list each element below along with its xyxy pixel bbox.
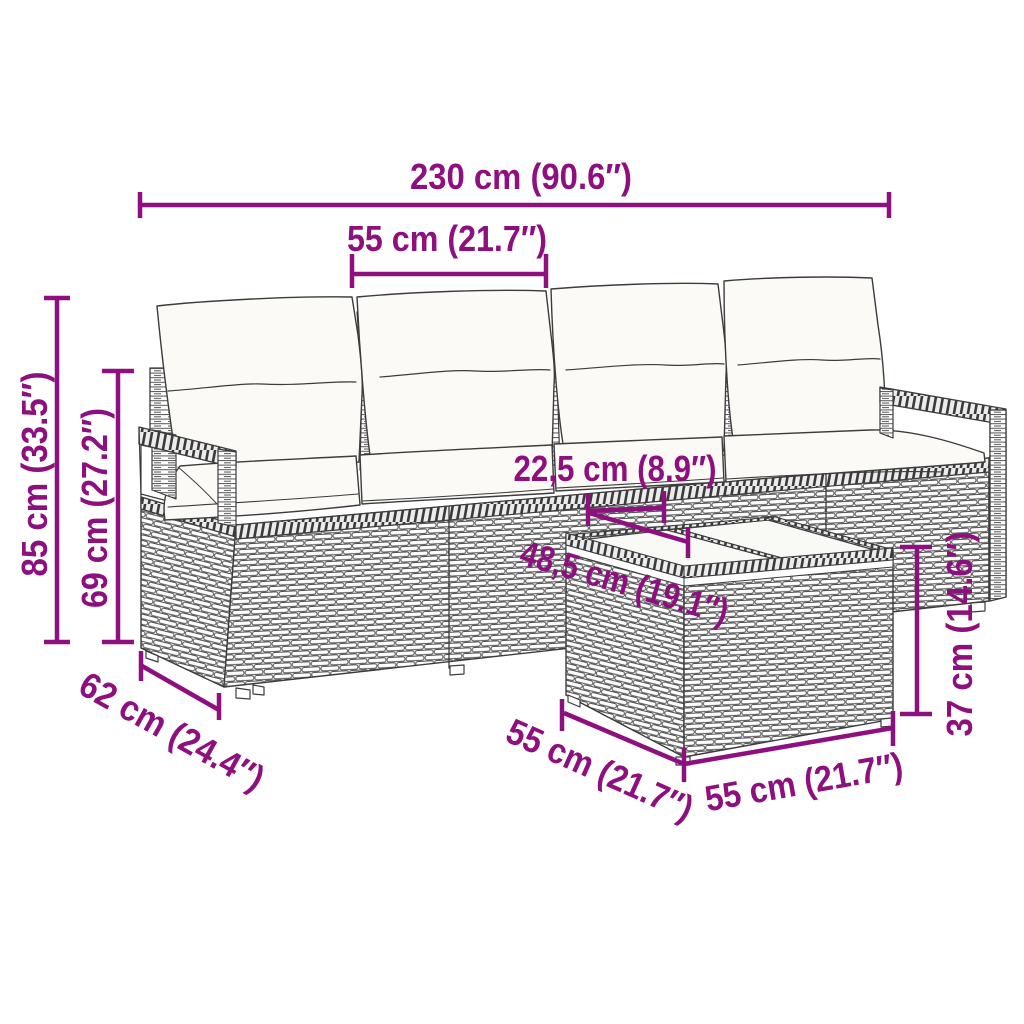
svg-text:55 cm (21.7″): 55 cm (21.7″) <box>347 218 547 259</box>
svg-text:69 cm (27.2″): 69 cm (27.2″) <box>74 408 115 608</box>
svg-text:85 cm (33.5″): 85 cm (33.5″) <box>14 372 55 577</box>
svg-text:37 cm (14.6″): 37 cm (14.6″) <box>939 532 980 737</box>
svg-text:22,5 cm (8.9″): 22,5 cm (8.9″) <box>514 448 717 489</box>
svg-text:230 cm (90.6″): 230 cm (90.6″) <box>410 156 632 197</box>
